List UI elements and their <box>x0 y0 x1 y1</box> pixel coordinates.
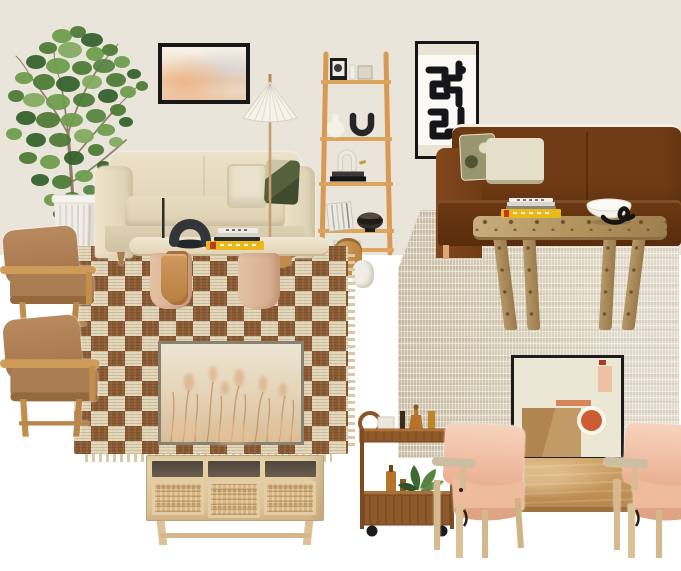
book-stack <box>501 198 565 222</box>
geo-circle <box>581 410 602 431</box>
cart-top-bottles <box>378 405 435 430</box>
geo-small-square <box>599 360 606 365</box>
shelf-magazines-and-bowl <box>327 202 383 232</box>
travertine-table-leg <box>238 253 280 309</box>
console-open-shelves <box>152 461 316 477</box>
boucle-pillow <box>486 138 544 184</box>
media-console <box>146 451 324 547</box>
shelf-arch-sculpture <box>330 150 366 182</box>
sunset-art-frame <box>158 43 250 104</box>
console-cane-doors <box>152 481 316 515</box>
console-stretcher <box>160 533 310 538</box>
book-stack <box>206 226 268 252</box>
grass-art-frame <box>158 341 304 445</box>
ladder-shelf <box>316 53 396 258</box>
geo-rect <box>598 366 612 392</box>
candelabra-sculpture <box>154 192 214 250</box>
oak-armchair-bottom <box>0 315 108 441</box>
sunset-art-image <box>162 47 246 100</box>
white-vase <box>352 260 374 288</box>
blush-sling-chair-right <box>616 420 681 562</box>
grass-art-image <box>161 344 301 442</box>
bowl-sculpture <box>581 191 637 227</box>
shelf-frames-and-candle <box>330 58 372 80</box>
blush-sling-chair-left <box>436 420 532 562</box>
geo-bar <box>556 400 591 406</box>
moodboard-canvas <box>0 0 681 571</box>
magazine-holder <box>158 251 192 309</box>
shelf-vases <box>327 114 371 138</box>
